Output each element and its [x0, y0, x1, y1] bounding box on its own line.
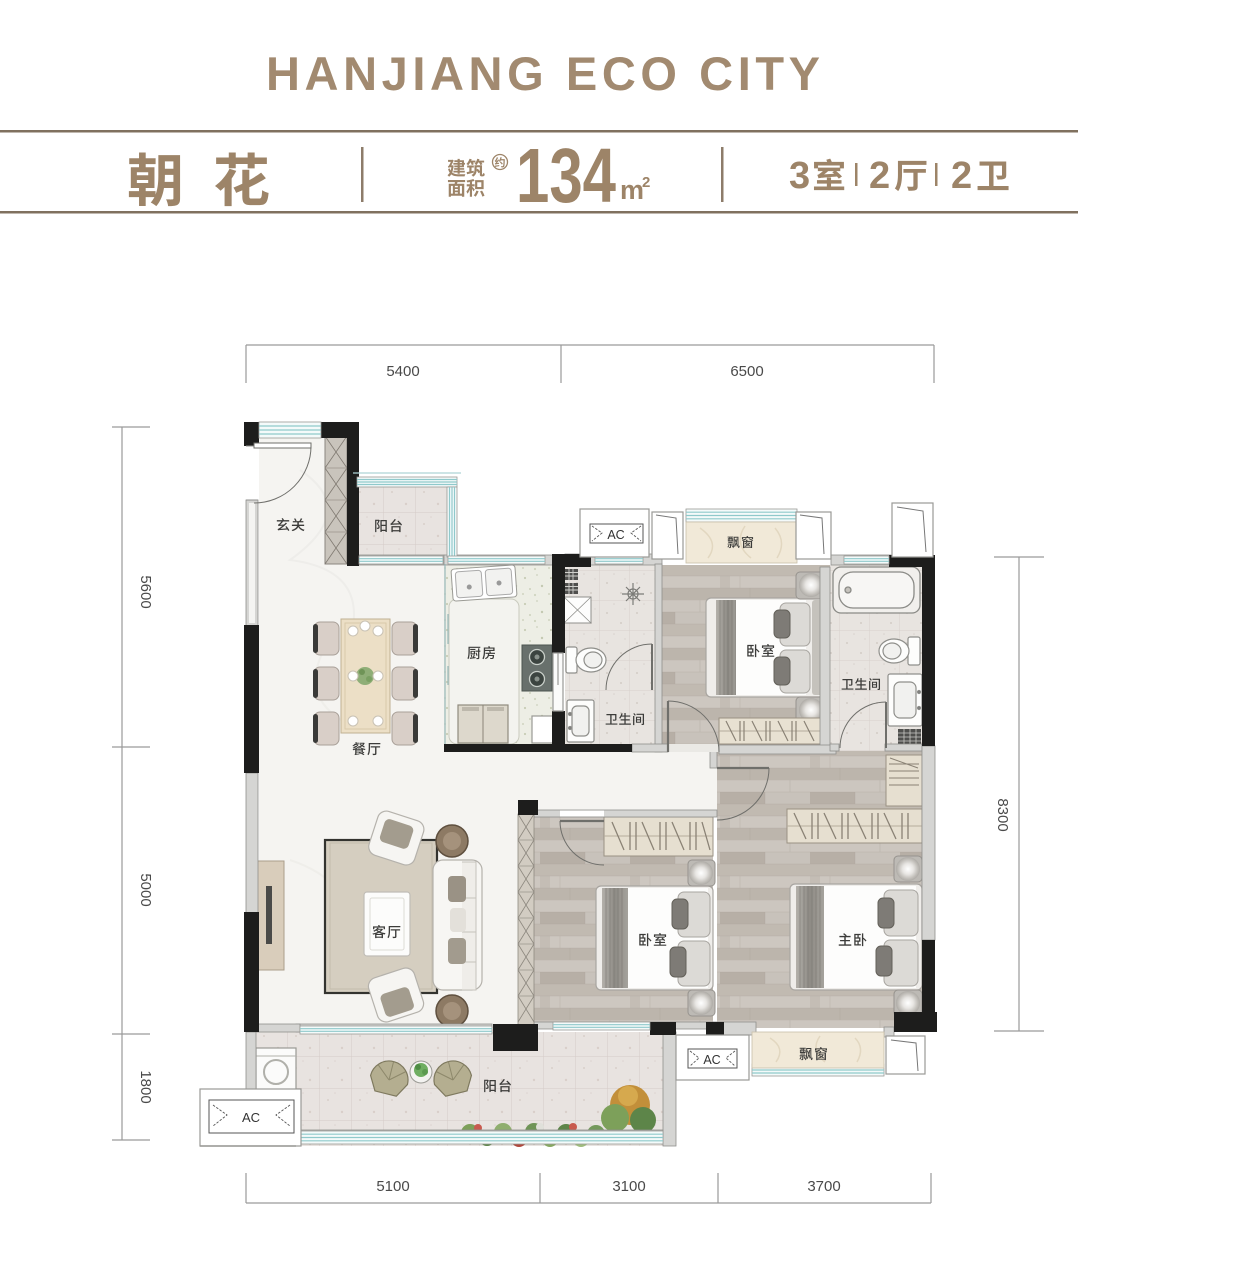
svg-text:5100: 5100 [376, 1178, 409, 1195]
svg-text:3100: 3100 [612, 1178, 645, 1195]
svg-text:2: 2 [642, 174, 650, 191]
svg-text:AC: AC [703, 1053, 720, 1067]
svg-text:m: m [620, 175, 644, 205]
svg-text:3: 3 [789, 155, 810, 197]
svg-text:2: 2 [869, 155, 890, 197]
svg-text:3700: 3700 [807, 1178, 840, 1195]
svg-text:1800: 1800 [137, 1070, 154, 1103]
svg-text:HANJIANG ECO CITY: HANJIANG ECO CITY [266, 47, 832, 100]
svg-text:6500: 6500 [730, 363, 763, 380]
svg-text:8300: 8300 [994, 798, 1011, 831]
svg-text:AC: AC [607, 528, 624, 542]
svg-text:134: 134 [516, 133, 616, 219]
svg-text:5600: 5600 [137, 575, 154, 608]
svg-text:5000: 5000 [137, 873, 154, 906]
svg-text:AC: AC [242, 1110, 260, 1125]
svg-text:2: 2 [951, 155, 972, 197]
svg-text:5400: 5400 [386, 363, 419, 380]
